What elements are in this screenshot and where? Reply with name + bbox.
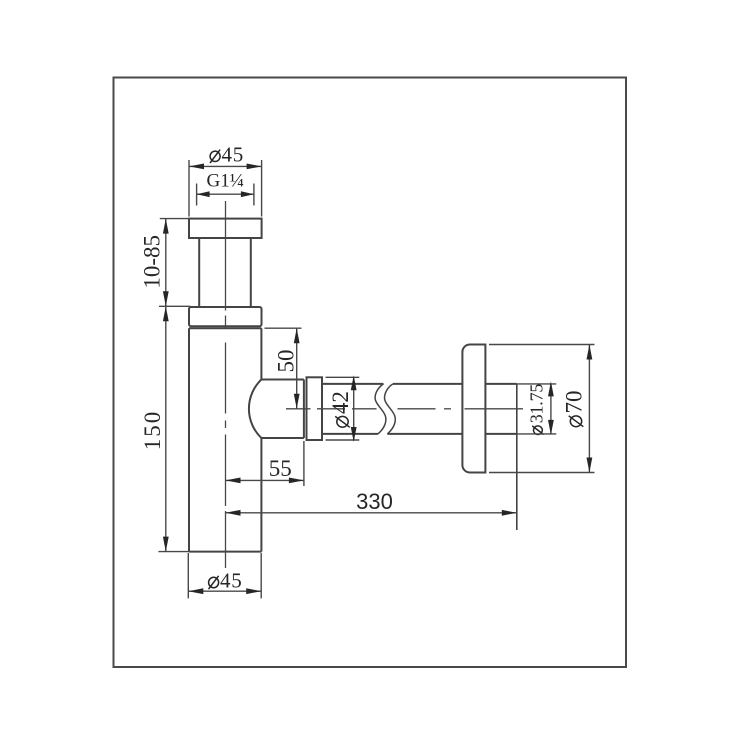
svg-text:55: 55 [269, 456, 292, 481]
svg-text:50: 50 [274, 350, 299, 373]
svg-text:330: 330 [356, 489, 393, 514]
svg-text:45: 45 [220, 569, 243, 593]
svg-text:42: 42 [328, 391, 353, 414]
svg-text:G1¼: G1¼ [207, 171, 244, 192]
svg-text:150: 150 [140, 410, 165, 451]
svg-text:10-85: 10-85 [140, 235, 165, 289]
svg-text:31.75: 31.75 [526, 384, 546, 424]
svg-text:70: 70 [562, 390, 587, 413]
svg-text:45: 45 [221, 142, 244, 166]
